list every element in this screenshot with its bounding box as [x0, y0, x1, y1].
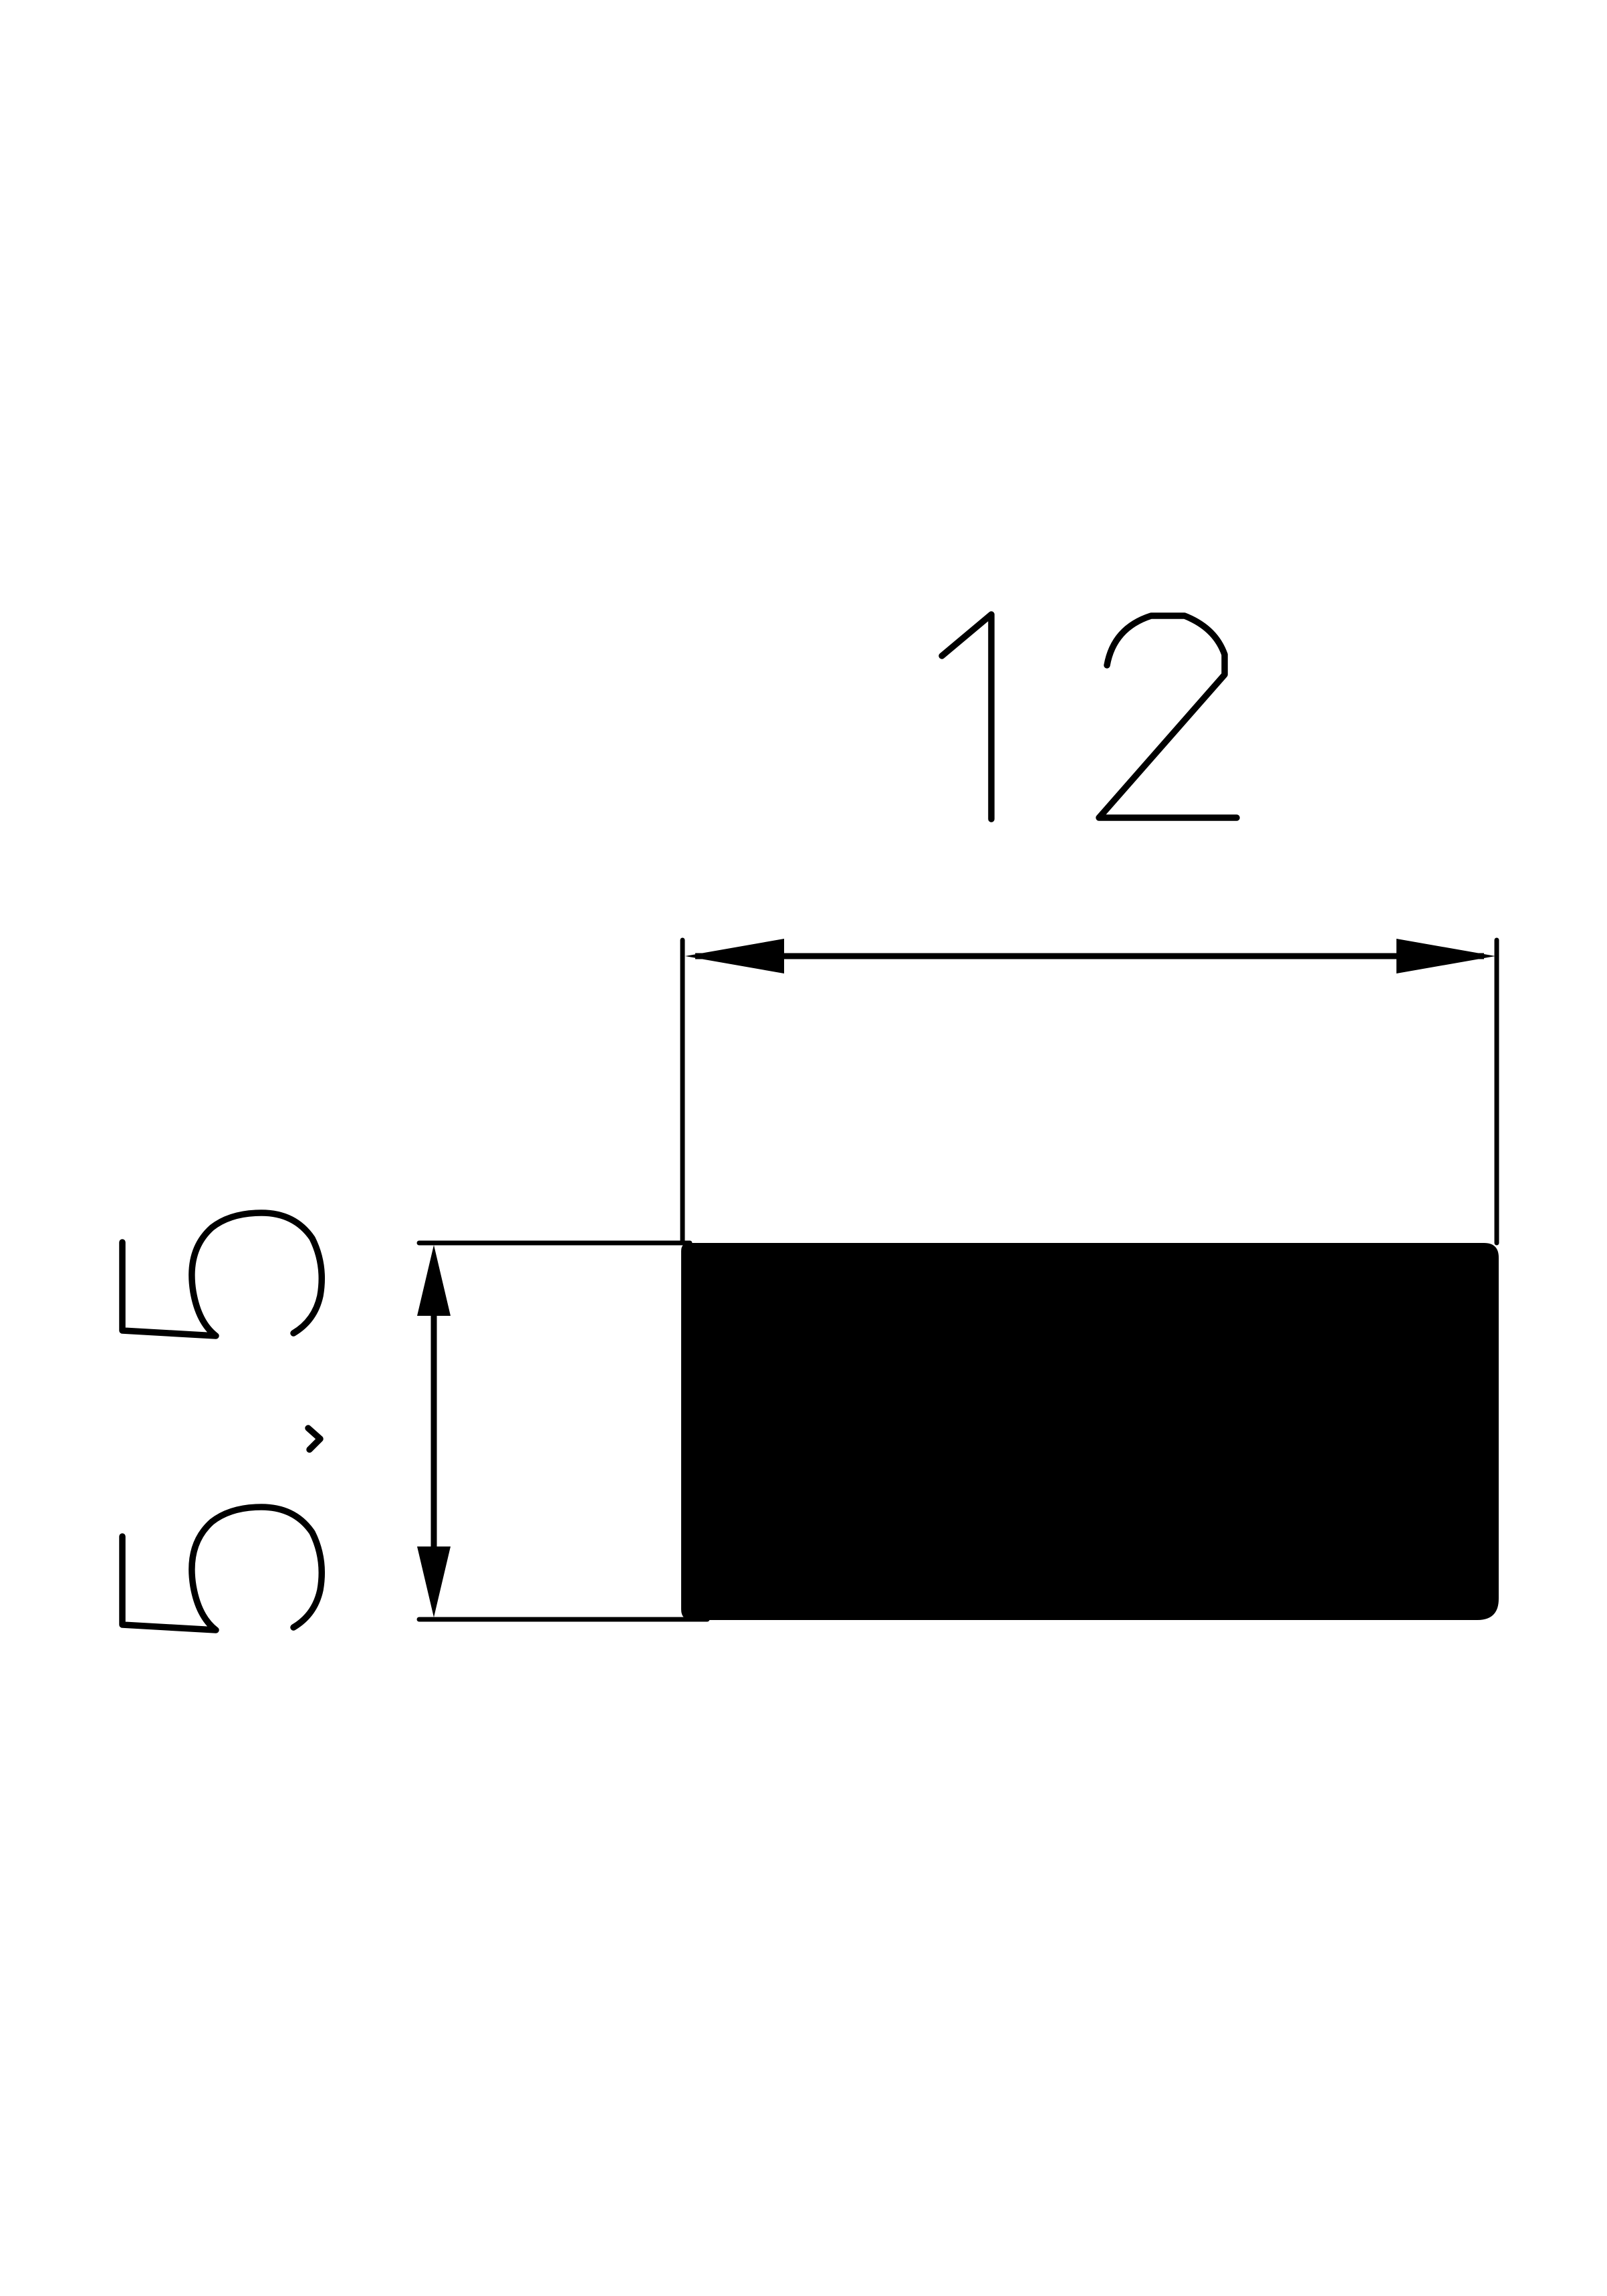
- technical-drawing-canvas: 12 5.5: [0, 0, 1607, 2296]
- height-dimension: 5.5: [122, 1213, 707, 1630]
- width-arrowhead-left-icon: [685, 939, 784, 973]
- profile-cross-section: [681, 1243, 1499, 1620]
- drawing-page: 12 5.5 12 5.5: [0, 0, 1607, 2296]
- height-dimension-label: 5.5: [122, 1213, 322, 1630]
- width-dimension: 12: [683, 614, 1497, 1243]
- width-dimension-label: 12: [942, 614, 1237, 819]
- height-arrowhead-bottom-icon: [417, 1546, 451, 1617]
- height-arrowhead-top-icon: [417, 1245, 451, 1316]
- profile-rectangle: [681, 1243, 1499, 1620]
- width-arrowhead-right-icon: [1396, 939, 1495, 973]
